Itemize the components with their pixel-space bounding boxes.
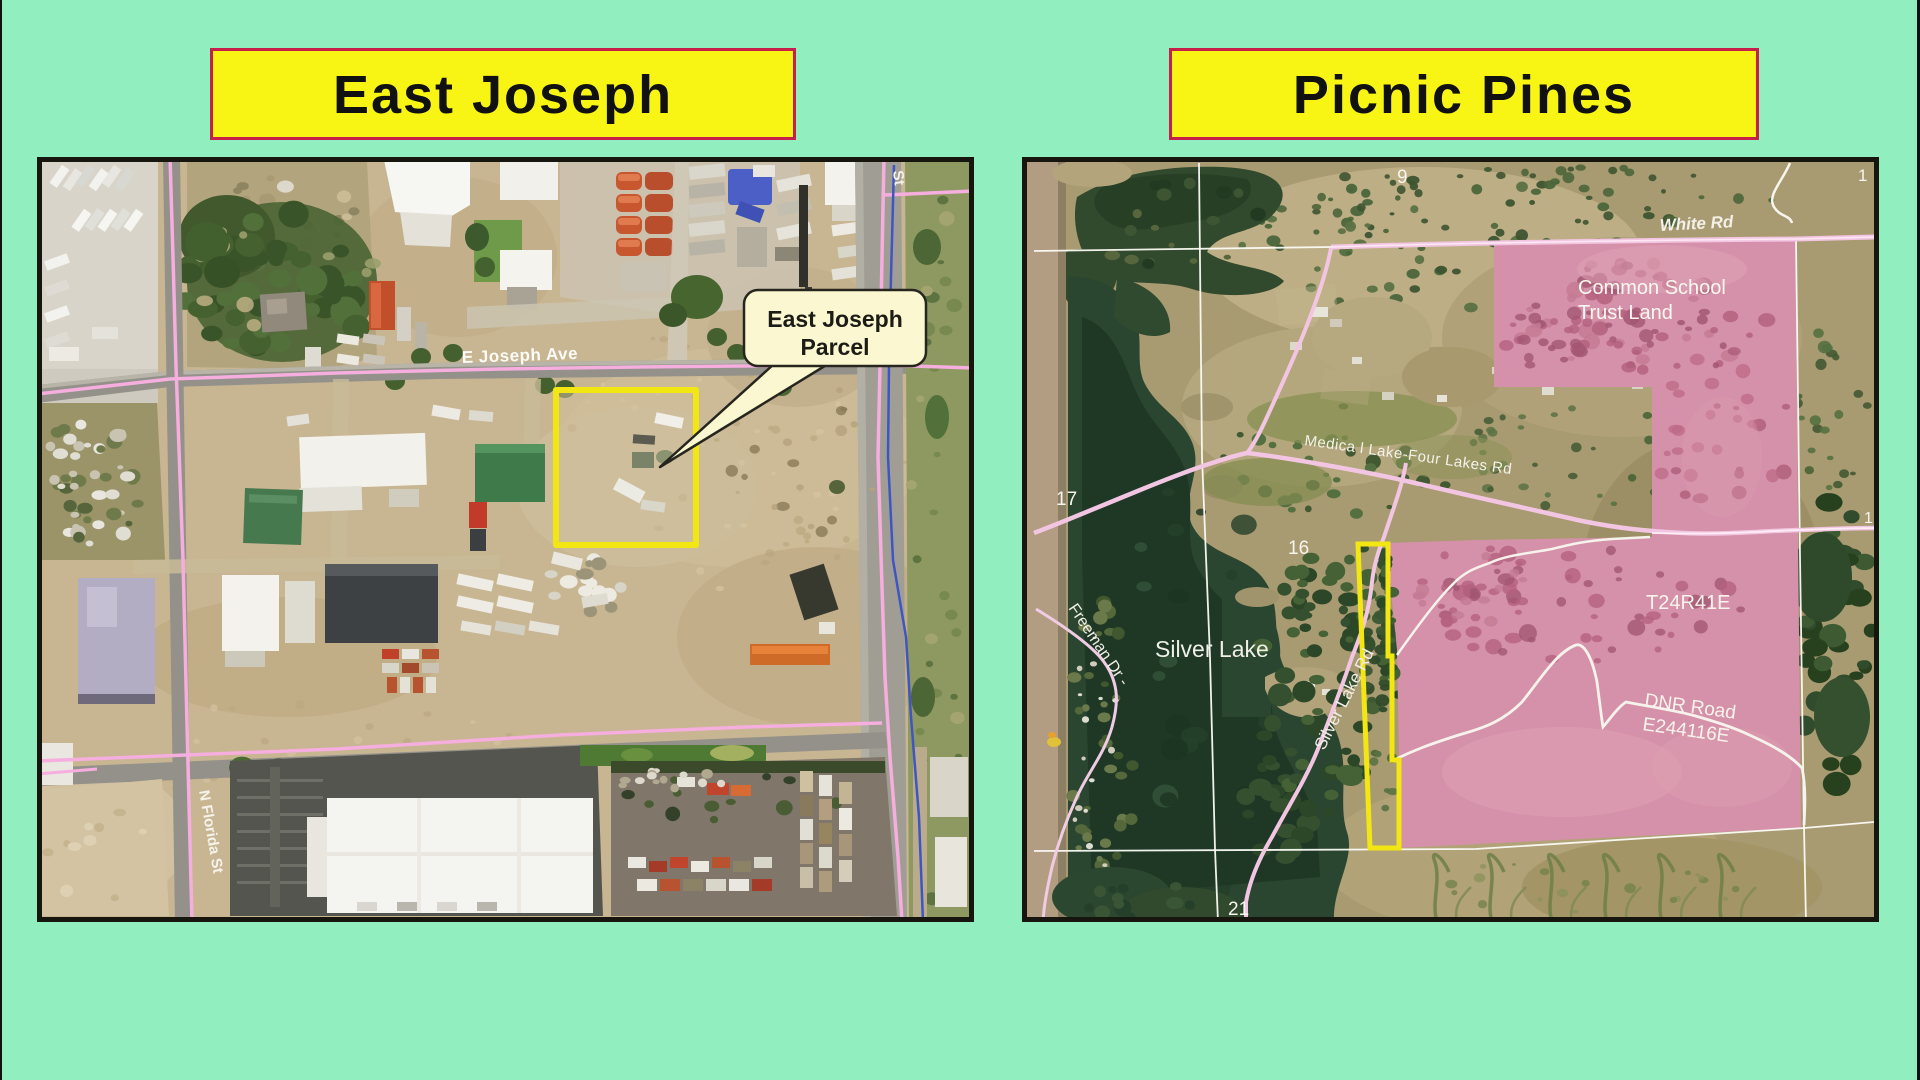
svg-text:Parcel: Parcel — [800, 334, 869, 360]
svg-text:16: 16 — [1288, 538, 1309, 559]
svg-text:1: 1 — [1864, 510, 1873, 527]
svg-text:Trust Land: Trust Land — [1578, 302, 1673, 324]
svg-text:Silver Lake: Silver Lake — [1155, 636, 1269, 662]
svg-text:T24R41E: T24R41E — [1646, 592, 1731, 614]
svg-text:E Joseph Ave: E Joseph Ave — [461, 344, 578, 367]
svg-text:White Rd: White Rd — [1659, 212, 1734, 235]
svg-text:St: St — [889, 169, 908, 186]
svg-text:East Joseph: East Joseph — [767, 306, 903, 332]
svg-text:1: 1 — [1858, 166, 1867, 185]
svg-text:17: 17 — [1056, 489, 1077, 510]
svg-text:9: 9 — [1397, 167, 1408, 188]
svg-text:Common School: Common School — [1578, 277, 1726, 299]
svg-text:21: 21 — [1228, 899, 1249, 920]
